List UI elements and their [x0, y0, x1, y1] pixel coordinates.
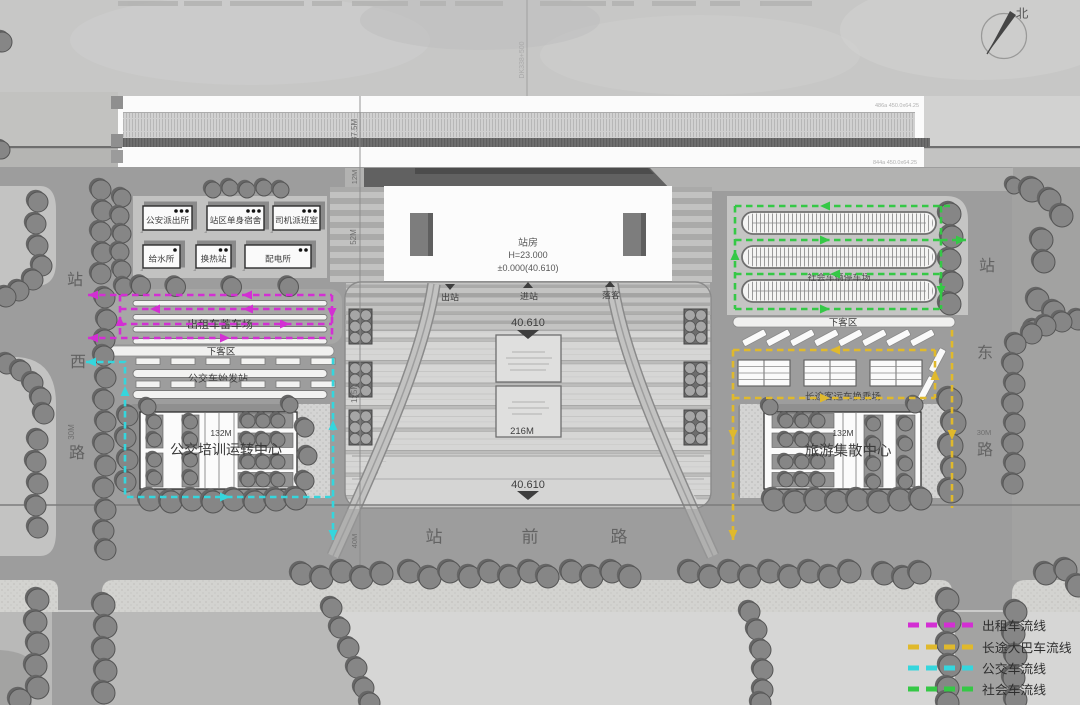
- svg-text:30M: 30M: [67, 424, 76, 440]
- svg-text:12M: 12M: [350, 170, 359, 185]
- svg-text:±0.000(40.610): ±0.000(40.610): [498, 263, 559, 273]
- svg-text:132M: 132M: [832, 428, 853, 438]
- svg-text:40.610: 40.610: [511, 317, 545, 329]
- svg-text:37.5M: 37.5M: [350, 119, 359, 142]
- svg-text:216M: 216M: [510, 426, 534, 437]
- svg-text:H=23.000: H=23.000: [508, 250, 547, 260]
- svg-text:486a 450.0x64.25: 486a 450.0x64.25: [875, 103, 919, 109]
- svg-text:DK338+500: DK338+500: [519, 41, 526, 78]
- svg-text:132M: 132M: [210, 428, 231, 438]
- svg-text:125M: 125M: [350, 383, 359, 403]
- svg-text:30M: 30M: [977, 428, 992, 437]
- svg-text:40.610: 40.610: [511, 479, 545, 491]
- svg-text:52M: 52M: [349, 229, 358, 245]
- svg-text:844a 450.0x64.25: 844a 450.0x64.25: [873, 160, 917, 166]
- svg-text:40M: 40M: [350, 534, 359, 549]
